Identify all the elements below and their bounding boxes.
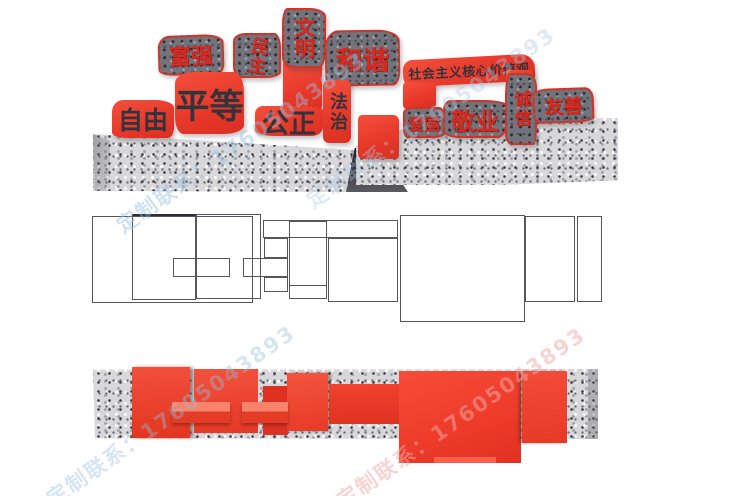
red-model-view [0, 0, 750, 496]
model-bar-2 [242, 402, 288, 423]
model-block-4 [287, 373, 328, 431]
model-block-2 [194, 369, 258, 433]
model-base-right-endface [588, 369, 598, 439]
design-sheet: 富强 民主 文明 和谐 社会主义核心价值观 爱国 敬业 诚信 友善 [0, 0, 750, 496]
model-block-6 [399, 371, 521, 463]
model-bar-1 [172, 402, 230, 423]
model-block-6-notch [434, 457, 496, 463]
model-block-5 [329, 384, 399, 424]
model-block-7 [522, 371, 567, 443]
